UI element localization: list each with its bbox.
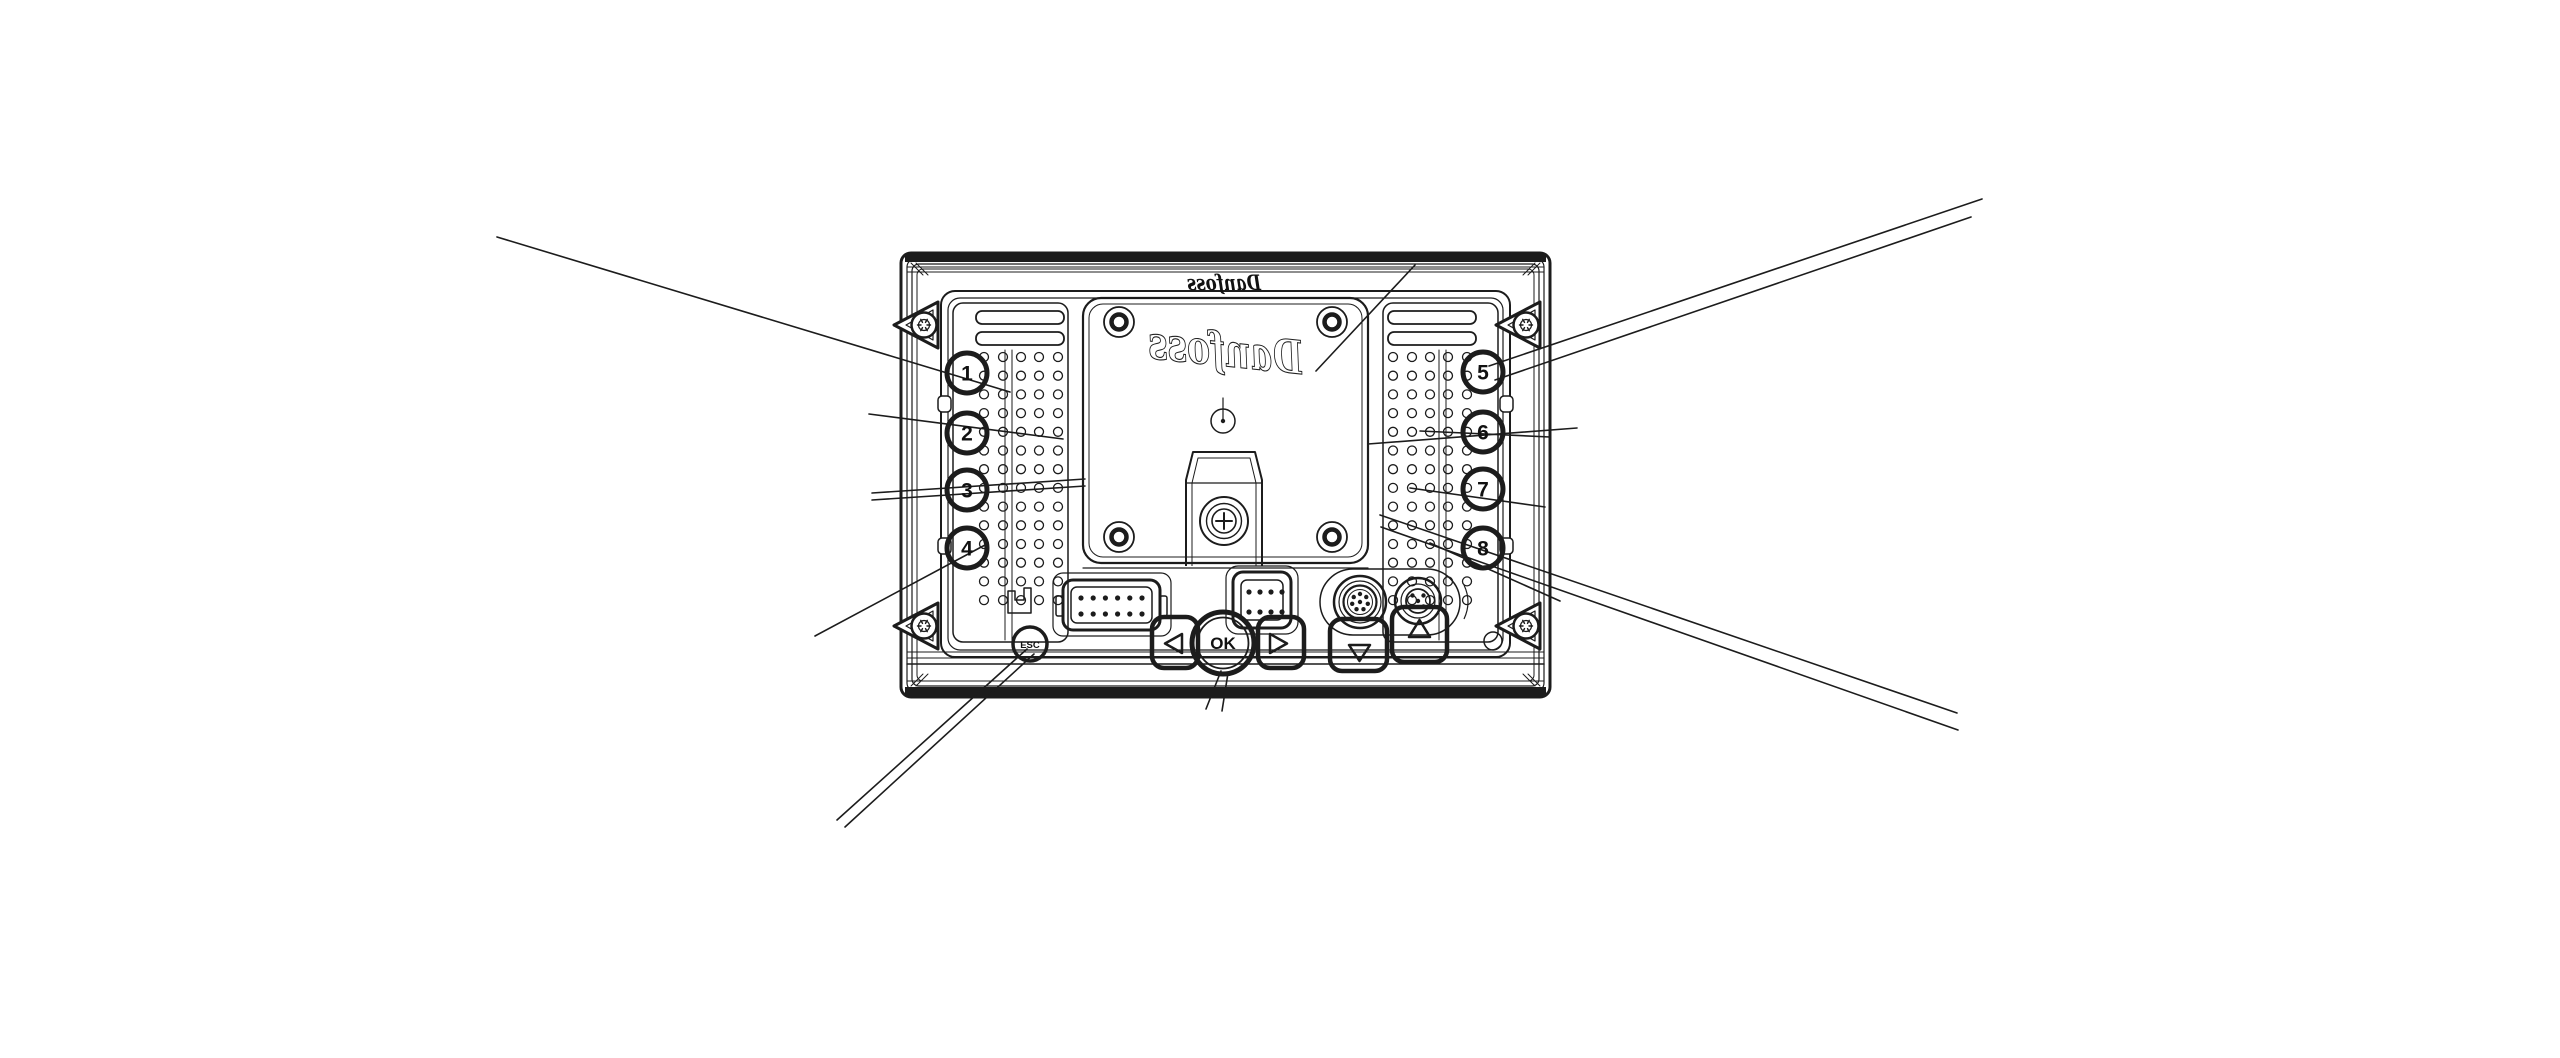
callout-balloon-7: 7: [1463, 469, 1503, 509]
ok-label: OK: [1210, 634, 1236, 653]
callout-balloons: 12345678: [947, 352, 1503, 568]
connector-8pin: [1226, 566, 1298, 634]
perforation-holes: [980, 353, 1472, 605]
callout-number-2: 2: [961, 423, 973, 446]
esc-button: ESC: [1013, 627, 1047, 661]
esc-label: ESC: [1020, 640, 1040, 651]
danfoss-logo-top: Danfoss: [1187, 270, 1262, 295]
callout-number-8: 8: [1477, 538, 1489, 561]
device-frame: [901, 253, 1550, 697]
brand-logos: DanfossDanfoss: [1146, 270, 1307, 385]
callout-number-5: 5: [1477, 362, 1489, 385]
callout-number-4: 4: [961, 538, 973, 561]
callout-number-3: 3: [961, 480, 973, 503]
callout-balloon-6: 6: [1463, 412, 1503, 452]
danfoss-logo-panel: Danfoss: [1146, 315, 1307, 385]
callout-number-6: 6: [1477, 422, 1489, 445]
connector-12pin: [1056, 580, 1167, 630]
diagram-canvas: DanfossDanfossESCOK12345678: [0, 0, 2560, 1058]
danfoss-rear-view-diagram: DanfossDanfossESCOK12345678: [0, 0, 2560, 1058]
callout-number-1: 1: [961, 363, 973, 386]
callout-number-7: 7: [1477, 479, 1489, 502]
up-down-buttons: [1330, 607, 1447, 671]
